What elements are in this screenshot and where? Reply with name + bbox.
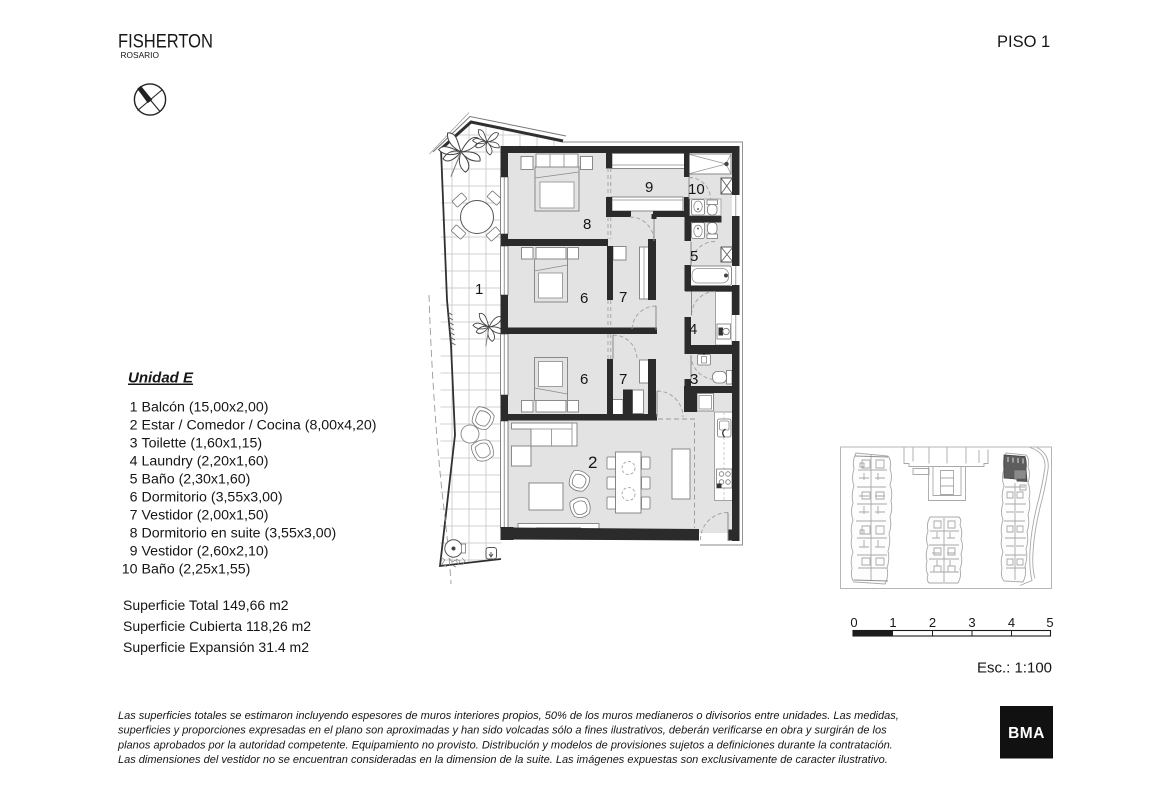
svg-text:2: 2	[588, 453, 597, 472]
svg-text:5: 5	[690, 248, 698, 265]
svg-text:Baño (2,25x1,55): Baño (2,25x1,55)	[142, 562, 251, 578]
svg-text:5: 5	[1046, 615, 1053, 630]
svg-text:PISO 1: PISO 1	[997, 33, 1050, 51]
svg-text:Vestidor (2,60x2,10): Vestidor (2,60x2,10)	[142, 544, 269, 560]
svg-text:6: 6	[130, 490, 138, 506]
svg-text:Superficie Cubierta 118,26 m2: Superficie Cubierta 118,26 m2	[123, 618, 311, 634]
svg-text:Unidad E: Unidad E	[128, 370, 194, 387]
svg-text:7: 7	[619, 371, 627, 388]
svg-text:Las dimensiones del vestidor n: Las dimensiones del vestidor no se encue…	[118, 754, 888, 766]
svg-text:9: 9	[645, 179, 653, 196]
svg-text:5: 5	[130, 472, 138, 488]
svg-text:Esc.: 1:100: Esc.: 1:100	[977, 660, 1052, 677]
svg-text:Toilette (1,60x1,15): Toilette (1,60x1,15)	[142, 436, 263, 452]
svg-text:BMA: BMA	[1008, 725, 1045, 742]
svg-text:4: 4	[130, 454, 138, 470]
svg-text:4: 4	[689, 321, 697, 338]
svg-text:ROSARIO: ROSARIO	[121, 50, 160, 60]
svg-text:3: 3	[690, 371, 698, 388]
svg-text:8: 8	[130, 526, 138, 542]
svg-text:Superficie Expansión 31.4 m2: Superficie Expansión 31.4 m2	[123, 639, 309, 655]
svg-text:Laundry (2,20x1,60): Laundry (2,20x1,60)	[142, 454, 269, 470]
svg-text:1: 1	[130, 400, 138, 416]
svg-text:Las superficies totales se est: Las superficies totales se estimaron inc…	[118, 710, 899, 722]
svg-text:1: 1	[475, 281, 483, 298]
svg-text:7: 7	[130, 508, 138, 524]
svg-text:Baño (2,30x1,60): Baño (2,30x1,60)	[142, 472, 251, 488]
svg-text:2: 2	[929, 615, 936, 630]
svg-text:9: 9	[130, 544, 138, 560]
svg-text:3: 3	[968, 615, 975, 630]
svg-text:2: 2	[130, 418, 138, 434]
svg-text:10: 10	[122, 562, 138, 578]
svg-text:0: 0	[850, 615, 857, 630]
svg-text:6: 6	[580, 371, 588, 388]
svg-text:superficies y proporciones exp: superficies y proporciones expresadas en…	[118, 725, 887, 737]
svg-text:planos aprobados por la autori: planos aprobados por la autoridad compet…	[117, 739, 893, 751]
svg-text:6: 6	[580, 290, 588, 307]
svg-text:8: 8	[583, 216, 591, 233]
svg-text:4: 4	[1008, 615, 1015, 630]
svg-text:Estar / Comedor / Cocina (8,00: Estar / Comedor / Cocina (8,00x4,20)	[142, 418, 377, 434]
svg-text:Vestidor (2,00x1,50): Vestidor (2,00x1,50)	[142, 508, 269, 524]
svg-text:10: 10	[688, 181, 705, 198]
svg-text:7: 7	[619, 289, 627, 306]
svg-text:3: 3	[130, 436, 138, 452]
svg-text:Dormitorio en suite (3,55x3,00: Dormitorio en suite (3,55x3,00)	[142, 526, 337, 542]
svg-text:Superficie Total 149,66 m2: Superficie Total 149,66 m2	[123, 597, 289, 613]
svg-text:1: 1	[889, 615, 896, 630]
svg-text:Balcón (15,00x2,00): Balcón (15,00x2,00)	[142, 400, 269, 416]
svg-text:Dormitorio (3,55x3,00): Dormitorio (3,55x3,00)	[142, 490, 283, 506]
